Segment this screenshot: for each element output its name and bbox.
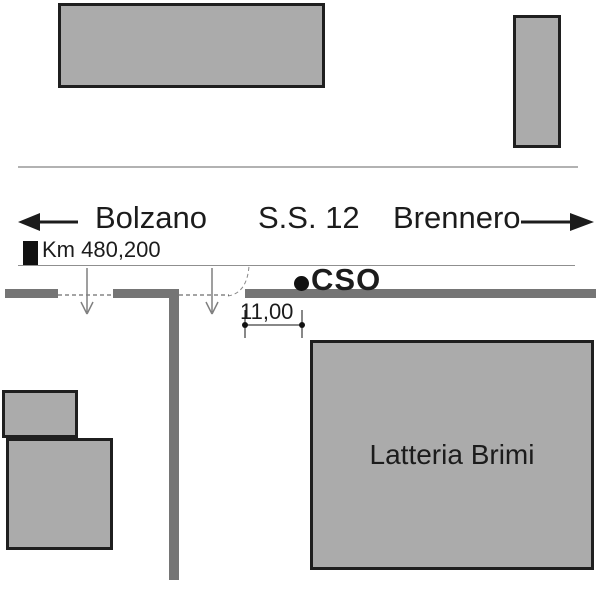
site-plan-canvas: Latteria Brimi Bolzano S.S. 12 Brennero …: [0, 0, 600, 600]
dimension-marks: [242, 310, 305, 338]
down-arrow-icon: [206, 268, 218, 314]
arrow-left-icon: [18, 213, 78, 231]
arrow-right-icon: [521, 213, 594, 231]
diagram-marks-layer: [0, 0, 600, 600]
driveway-arc: [228, 266, 249, 296]
down-arrow-icon: [81, 268, 93, 314]
